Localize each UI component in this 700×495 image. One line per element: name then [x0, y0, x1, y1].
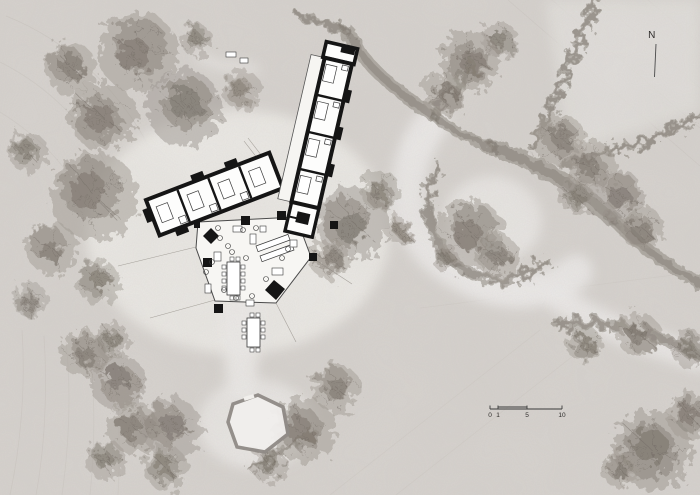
site-plan-drawing: N 0 1 5 10 [0, 0, 700, 495]
chairs-item [261, 328, 265, 332]
courtyard-tables-item [214, 252, 221, 261]
courtyard-columns-item [277, 211, 286, 220]
courtyard-columns-item [330, 221, 338, 229]
tree-core [453, 220, 482, 249]
tree-canopy [482, 22, 518, 58]
tree-core [159, 412, 184, 437]
tree-canopy [476, 235, 520, 279]
courtyard-tables-item [250, 234, 256, 244]
north-wing-furniture-item [341, 65, 348, 71]
chairs-item [261, 321, 265, 325]
chairs-item [242, 335, 246, 339]
courtyard-columns-item [241, 216, 250, 225]
tree-core [86, 103, 115, 132]
scale-label-5: 5 [525, 412, 529, 419]
tree-canopy [90, 354, 146, 410]
chairs-item [261, 335, 265, 339]
site-plan: N 0 1 5 10 [0, 0, 700, 495]
north-wing-furniture-item [324, 139, 331, 145]
chairs-item [222, 272, 226, 276]
courtyard-columns-item [203, 258, 212, 267]
chairs-item [241, 286, 245, 290]
tree-canopy [222, 70, 262, 110]
tree-canopy [360, 170, 400, 210]
tree-canopy [146, 70, 222, 146]
courtyard-tables-item [240, 58, 248, 63]
scale-label-10: 10 [558, 412, 566, 419]
tree-core [76, 346, 96, 366]
courtyard-columns-item [214, 304, 223, 313]
tree-canopy [144, 446, 188, 490]
chairs-item [250, 313, 254, 317]
chairs-item [256, 348, 260, 352]
courtyard-tables-item [226, 52, 236, 57]
north-wing-furniture-item [316, 176, 323, 182]
tree-core [170, 87, 202, 119]
tree-canopy [558, 178, 594, 214]
tree-canopy [386, 216, 414, 244]
tree-core [634, 430, 668, 464]
scale-label-0: 0 [488, 412, 492, 419]
tree-canopy [602, 452, 638, 488]
tree-canopy [566, 326, 602, 362]
tree-core [460, 50, 485, 75]
tree-core [106, 332, 121, 347]
tree-core [436, 82, 454, 100]
tree-canopy [620, 206, 664, 250]
courtyard-tables-item [272, 268, 283, 275]
courtyard-columns-item [309, 253, 317, 261]
chairs-item [241, 279, 245, 283]
chairs-item [222, 265, 226, 269]
chairs-item [242, 328, 246, 332]
tree-canopy [86, 440, 126, 480]
scale-label-1: 1 [496, 412, 500, 419]
chairs-item [242, 321, 246, 325]
chairs-item [236, 257, 240, 261]
chairs-item [222, 279, 226, 283]
chairs-item [256, 313, 260, 317]
tree-canopy [94, 322, 130, 358]
courtyard-tables-item [246, 300, 254, 306]
tree-core [286, 417, 313, 444]
tree-canopy [432, 244, 460, 272]
tree-core [155, 458, 173, 476]
north-wing-furniture-item [333, 102, 340, 108]
tree-core [628, 325, 646, 343]
tree-canopy [12, 282, 48, 318]
courtyard-columns-item [194, 222, 200, 228]
chairs-item [241, 265, 245, 269]
chairs-item [230, 257, 234, 261]
tree-canopy [69, 82, 137, 150]
tree-canopy [26, 222, 78, 274]
north-label: N [648, 30, 656, 41]
tree-canopy [422, 72, 466, 116]
tree-canopy [8, 132, 48, 172]
chairs-item [250, 348, 254, 352]
tree-core [91, 272, 109, 290]
tree-canopy [180, 24, 212, 56]
outdoor-table [247, 318, 260, 347]
drawing-layers [0, 0, 700, 495]
courtyard-tables-item [260, 226, 266, 232]
tree-core [38, 240, 60, 262]
tree-canopy [76, 260, 120, 304]
chairs-item [241, 272, 245, 276]
tree-canopy [312, 364, 360, 412]
tree-core [579, 336, 594, 351]
tree-canopy [616, 312, 660, 356]
tree-core [678, 405, 698, 425]
long-table [227, 262, 240, 295]
courtyard-tables-item [205, 284, 211, 293]
courtyard-tables-item [290, 240, 297, 247]
